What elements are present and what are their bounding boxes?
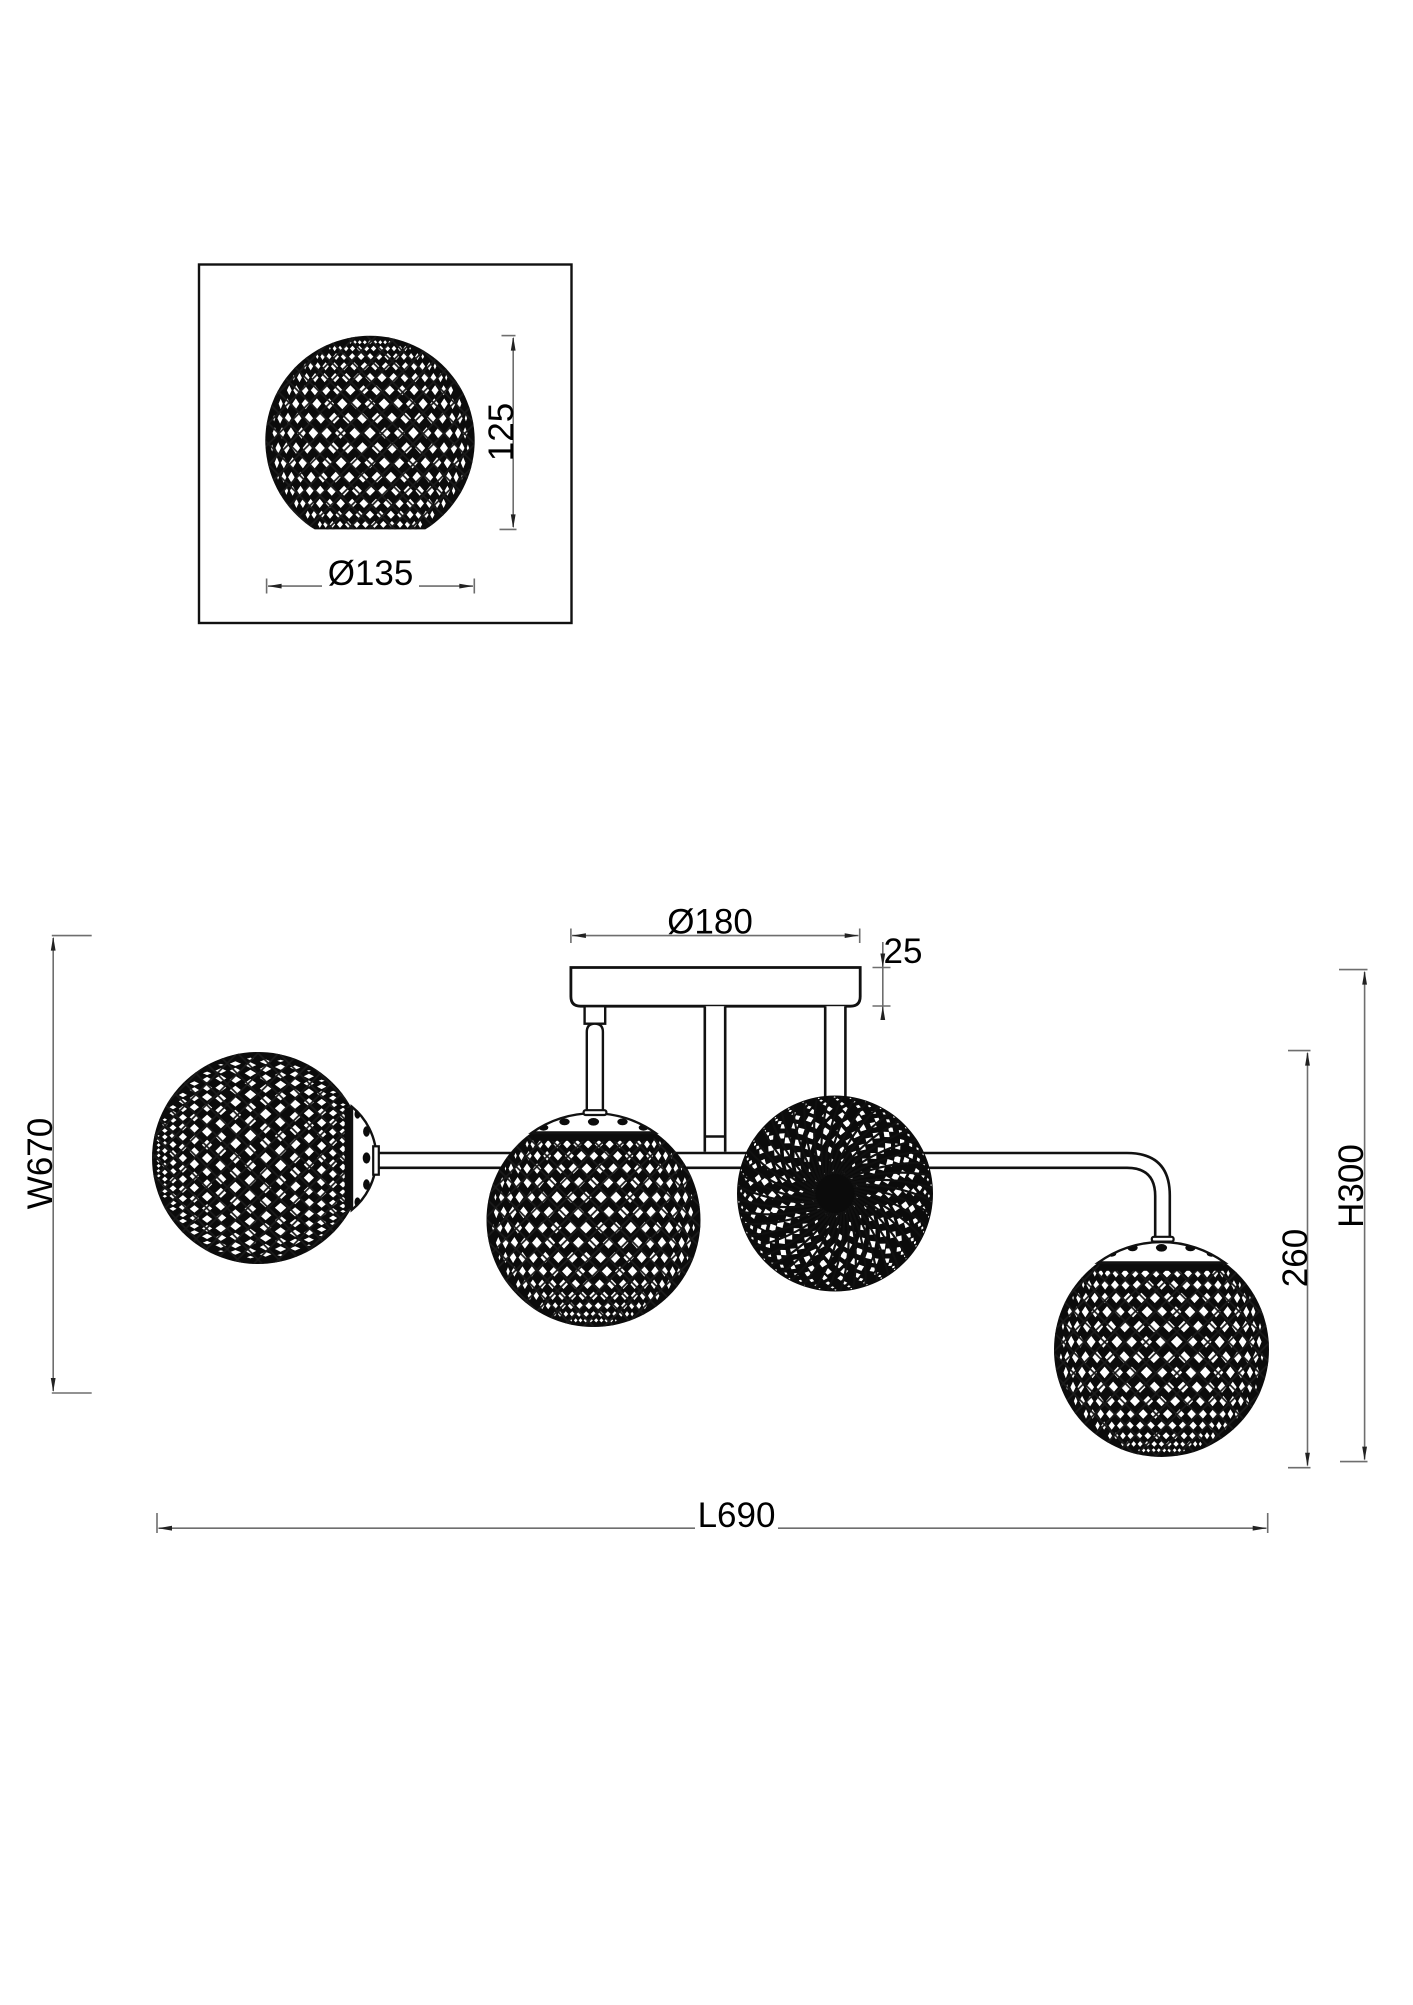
svg-text:125: 125 — [482, 403, 521, 461]
svg-text:H300: H300 — [1332, 1144, 1371, 1228]
svg-text:Ø135: Ø135 — [328, 554, 414, 593]
svg-text:W670: W670 — [21, 1118, 60, 1209]
svg-text:Ø180: Ø180 — [667, 903, 753, 942]
svg-text:260: 260 — [1276, 1229, 1315, 1287]
svg-text:25: 25 — [884, 932, 923, 971]
svg-text:L690: L690 — [698, 1496, 776, 1535]
